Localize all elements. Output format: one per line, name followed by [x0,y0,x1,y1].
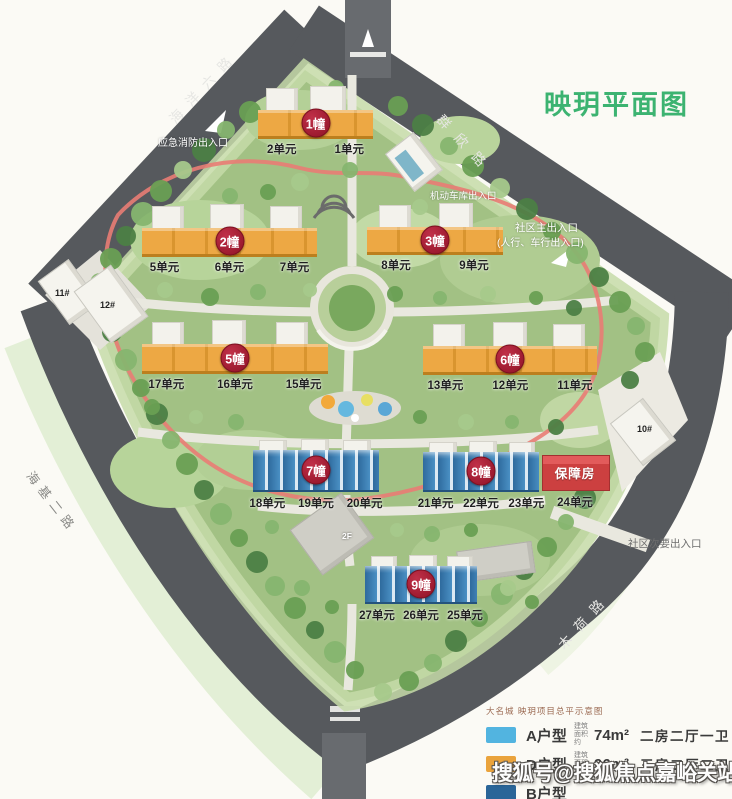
legend-label: A户型 [526,725,574,746]
unit-label: 6单元 [215,259,244,275]
entrance-label-main-1: 社区主出入口 [515,220,578,235]
unit-label: 1单元 [335,141,364,157]
unit-label: 18单元 [249,495,285,511]
building-12-label: 12# [100,300,115,310]
building-2-badge: 2幢 [215,227,244,256]
watermark: 搜狐号@搜狐焦点嘉峪关站 [492,757,732,787]
building-3-badge: 3幢 [421,225,450,254]
unit-label: 27单元 [359,607,395,623]
building-9-badge: 9幢 [407,570,436,599]
building-2: 2幢 5单元 6单元 7单元 [142,228,317,254]
unit-label: 8单元 [381,257,410,273]
entrance-label-fire: 应急消防出入口 [158,134,228,149]
unit-label: 21单元 [418,495,454,511]
building-10-label: 10# [637,424,652,434]
building-7: 7幢 18单元 19单元 20单元 [253,450,379,490]
legend-desc: 二房二厅一卫 [640,725,730,745]
building-5-units: 17单元 16单元 15单元 [132,376,338,392]
entrance-label-secondary: 社区次要出入口 [628,536,702,551]
unit-label: 16单元 [217,376,253,392]
building-affordable: 保障房 24单元 [542,455,608,489]
legend-swatch-a [486,727,516,743]
building-affordable-label: 保障房 [542,455,608,489]
site-plan-page: 映玥平面图 海洋六路 群欣路 海基二路 木荷路 应急消防出入口 机动车库出入口 … [0,0,732,799]
entrance-label-main-2: (人行、车行出入口) [497,234,584,249]
building-8-units: 21单元 22单元 23单元 [413,495,549,511]
unit-label: 7单元 [280,259,309,275]
building-3-units: 8单元 9单元 [357,257,513,273]
unit-label: 11单元 [557,377,592,393]
legend-area-prefix: 建筑面积约 [574,723,591,747]
building-1-units: 2单元 1单元 [248,141,383,157]
building-7-units: 18单元 19单元 20单元 [243,495,389,511]
unit-label: 25单元 [447,607,483,623]
building-8-badge: 8幢 [467,457,496,486]
building-5-badge: 5幢 [221,343,250,372]
entrance-label-garage: 机动车库出入口 [430,188,497,202]
legend-row-a: A户型 建筑面积约 74m² 二房二厅一卫 [486,724,732,746]
unit-label: 2单元 [267,141,296,157]
building-9: 9幢 27单元 26单元 25单元 [365,566,477,602]
central-plaza [310,266,394,350]
building-6: 6幢 13单元 12单元 11单元 [423,346,597,372]
unit-label: 20单元 [347,495,383,511]
legend-swatch-b [486,785,516,799]
building-6-badge: 6幢 [496,345,525,374]
legend-area: 74m² [594,727,640,744]
clubhouse-floor-label: 2F [342,531,352,541]
unit-label: 13单元 [428,377,464,393]
unit-label: 22单元 [463,495,499,511]
building-9-units: 27单元 26单元 25单元 [355,607,487,623]
building-6-units: 13单元 12单元 11单元 [413,377,607,393]
page-title: 映玥平面图 [544,83,689,122]
building-3: 3幢 8单元 9单元 [367,227,503,252]
unit-label: 12单元 [492,377,528,393]
building-2-units: 5单元 6单元 7单元 [132,259,327,275]
building-11-label: 11# [55,288,70,298]
unit-label: 5单元 [150,259,179,275]
unit-label: 9单元 [459,257,488,273]
unit-label: 15单元 [286,376,322,392]
legend-caption: 大名城 映玥项目总平示意图 [486,705,732,717]
building-5: 5幢 17单元 16单元 15单元 [142,344,328,371]
unit-label: 26单元 [403,607,439,623]
building-1-badge: 1幢 [301,109,330,138]
building-7-badge: 7幢 [302,456,331,485]
playground [309,391,401,425]
unit-label: 19单元 [298,495,334,511]
building-8: 8幢 21单元 22单元 23单元 [423,452,539,490]
unit-label: 17单元 [148,376,184,392]
building-affordable-units: 24单元 [532,494,618,510]
unit-label: 24单元 [557,494,593,510]
building-1: 1幢 2单元 1单元 [258,110,373,136]
